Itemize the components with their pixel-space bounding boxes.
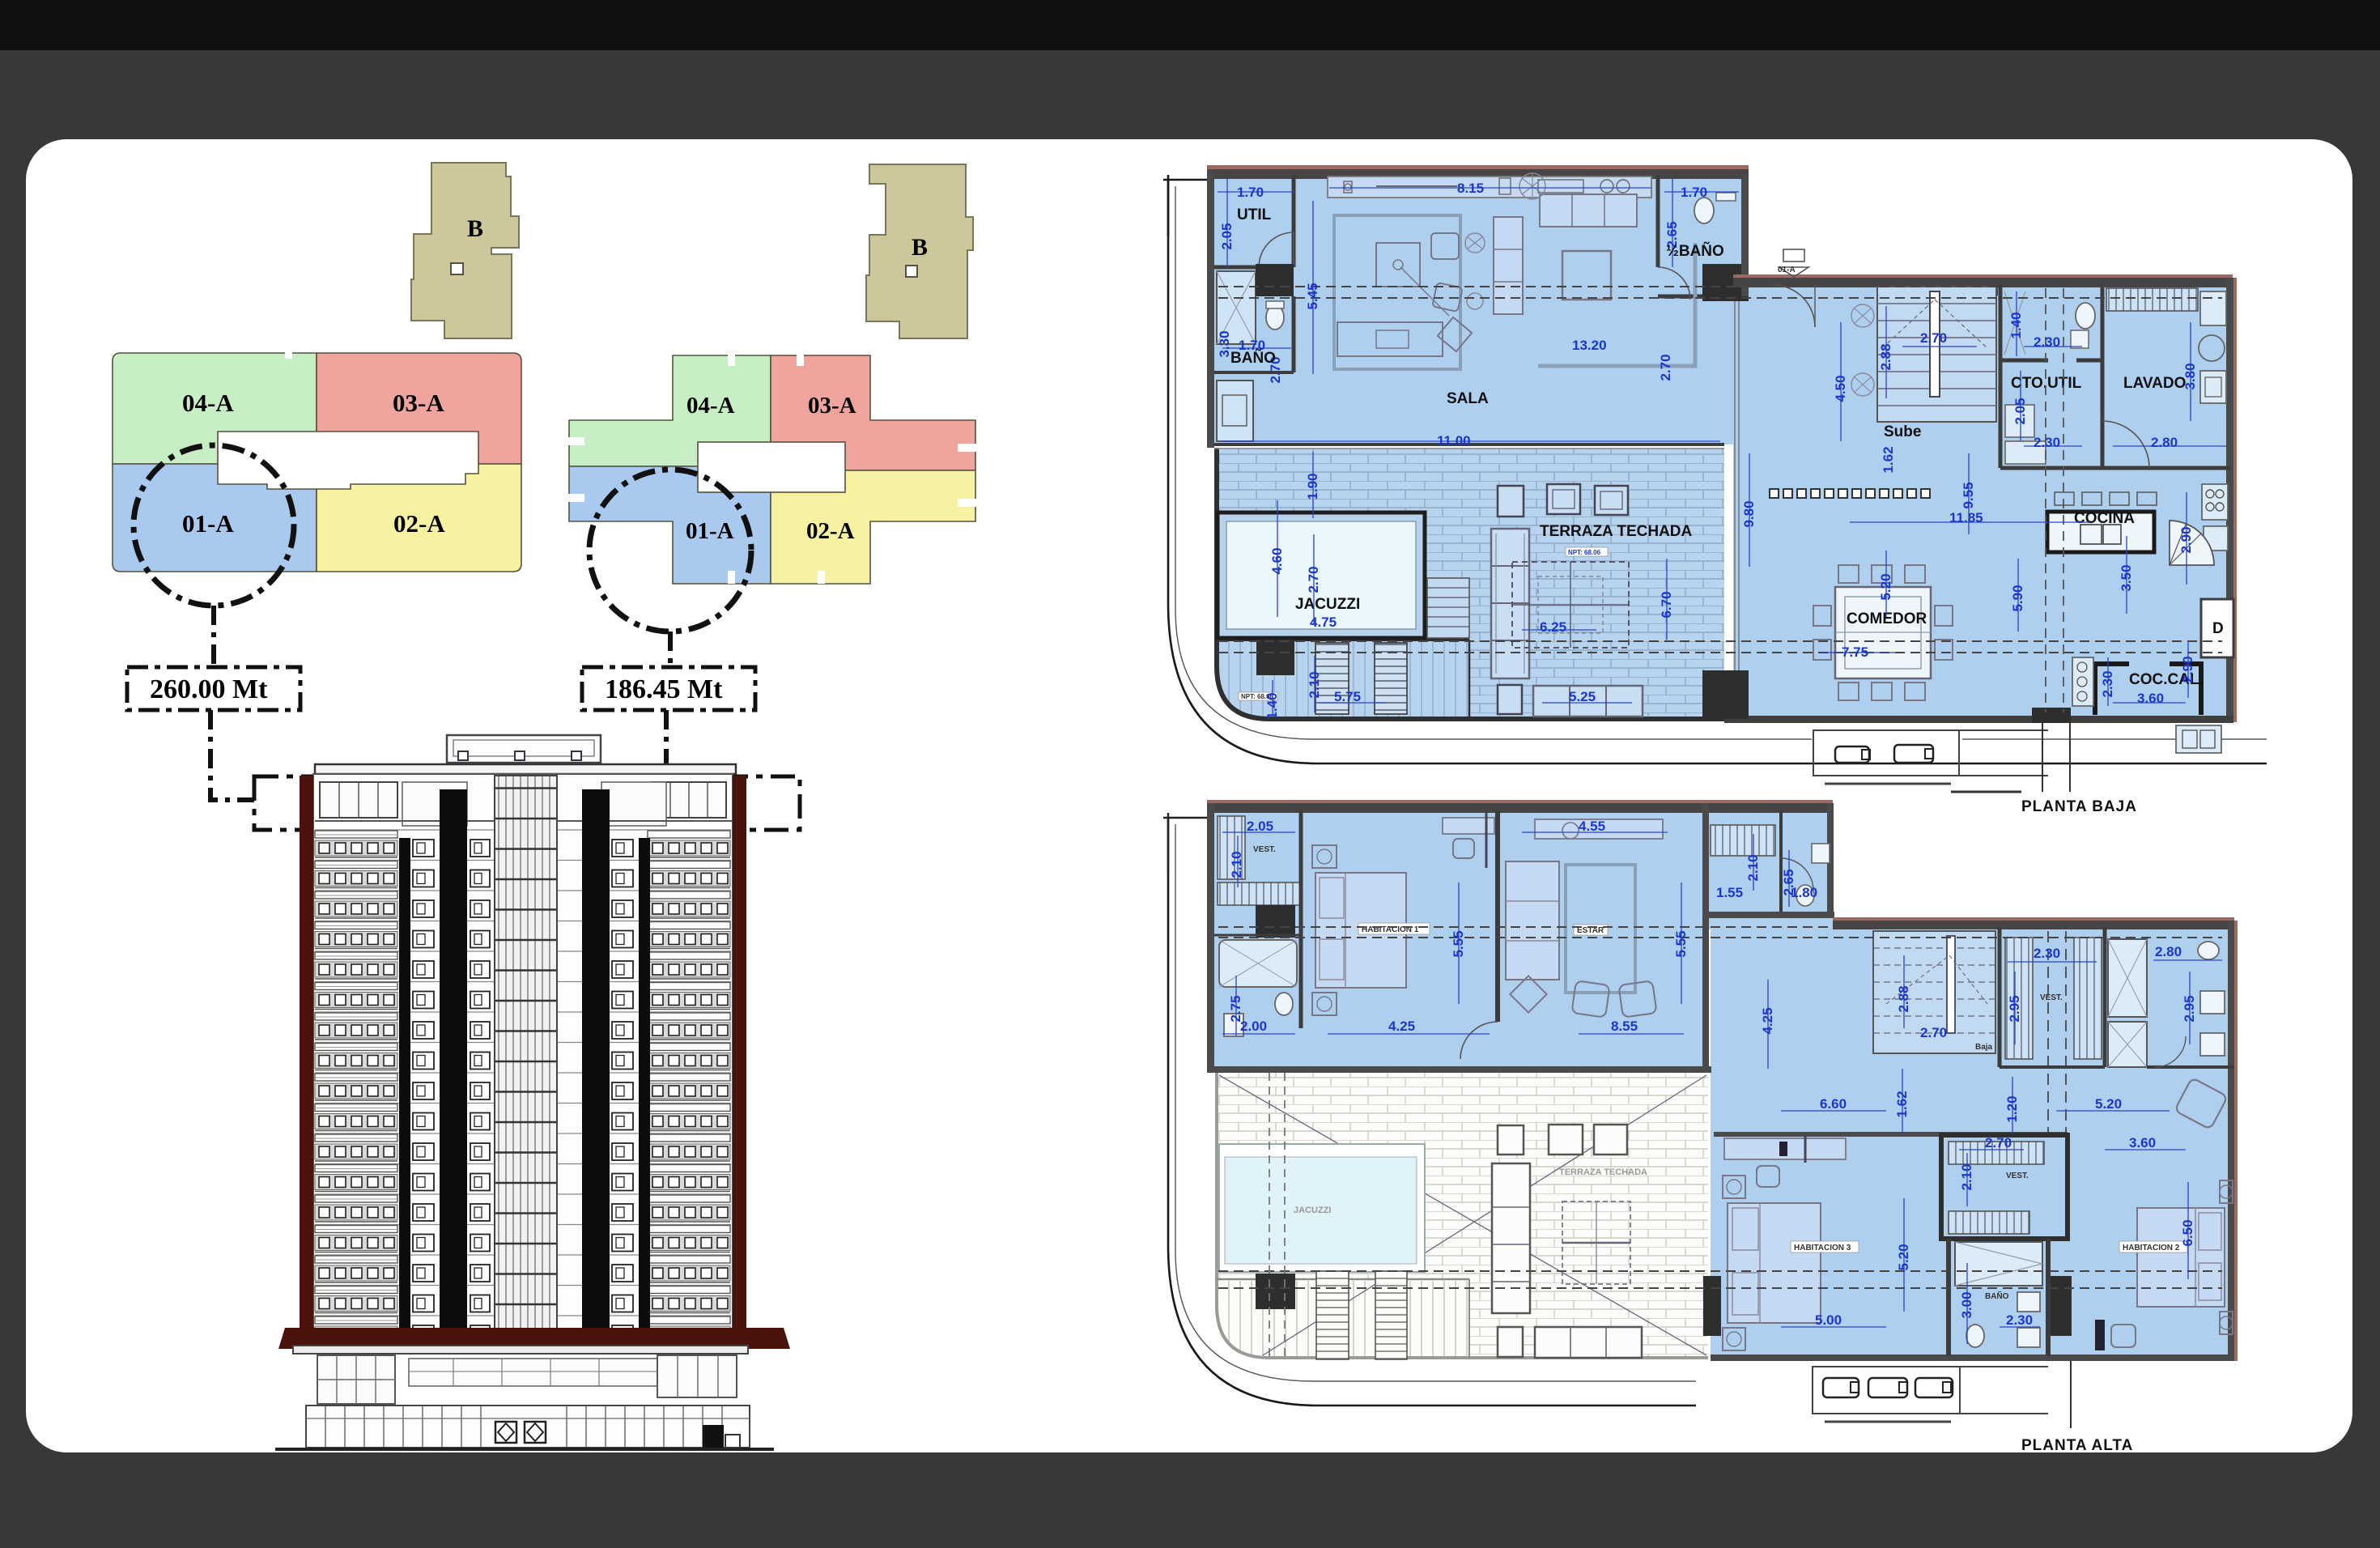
svg-text:D: D (2212, 620, 2224, 637)
svg-text:02-A: 02-A (806, 518, 855, 544)
svg-text:2.30: 2.30 (2006, 1312, 2033, 1328)
svg-text:5.20: 5.20 (1896, 1244, 1911, 1270)
svg-text:JACUZZI: JACUZZI (1294, 1206, 1331, 1215)
svg-text:1.55: 1.55 (1716, 885, 1743, 900)
svg-text:2.05: 2.05 (2012, 398, 2028, 424)
svg-text:NPT: 68.06: NPT: 68.06 (1568, 549, 1601, 556)
svg-text:2.70: 2.70 (1985, 1135, 2012, 1150)
svg-text:2.80: 2.80 (2151, 435, 2178, 450)
svg-text:5.55: 5.55 (1451, 930, 1466, 957)
svg-text:BAÑO: BAÑO (1985, 1291, 2009, 1301)
svg-text:5.45: 5.45 (1305, 283, 1320, 309)
svg-text:B: B (912, 234, 928, 261)
svg-text:5.25: 5.25 (1569, 689, 1596, 704)
svg-text:HABITACION 2: HABITACION 2 (2123, 1244, 2180, 1252)
svg-text:8.15: 8.15 (1457, 181, 1484, 196)
svg-text:2.10: 2.10 (1307, 671, 1322, 698)
svg-text:6.70: 6.70 (1659, 591, 1674, 618)
svg-text:186.45 Mt: 186.45 Mt (605, 674, 723, 704)
svg-text:03-A: 03-A (393, 389, 444, 417)
svg-text:4.55: 4.55 (1579, 819, 1605, 834)
svg-text:VEST.: VEST. (2040, 993, 2063, 1002)
svg-text:2.95: 2.95 (2007, 995, 2022, 1022)
svg-text:2.90: 2.90 (2178, 526, 2194, 553)
svg-text:1.40: 1.40 (1264, 692, 1280, 719)
svg-text:01-A: 01-A (686, 518, 734, 544)
svg-text:5.55: 5.55 (1673, 930, 1689, 957)
svg-text:260.00 Mt: 260.00 Mt (150, 674, 268, 704)
svg-text:2.00: 2.00 (1240, 1019, 1267, 1034)
svg-text:2.10: 2.10 (1745, 854, 1761, 881)
svg-text:SALA: SALA (1447, 390, 1489, 407)
svg-text:2.05: 2.05 (1219, 223, 1235, 249)
svg-text:2.30: 2.30 (2034, 946, 2060, 961)
svg-text:4.25: 4.25 (1760, 1007, 1775, 1034)
svg-text:1.80: 1.80 (1791, 885, 1817, 900)
svg-text:TERRAZA TECHADA: TERRAZA TECHADA (1540, 523, 1693, 540)
svg-text:2.10: 2.10 (1959, 1163, 1974, 1190)
svg-text:1.40: 1.40 (2008, 312, 2024, 338)
svg-text:B: B (467, 215, 483, 242)
svg-text:9.55: 9.55 (1961, 482, 1976, 508)
svg-text:2.88: 2.88 (1896, 985, 1911, 1012)
svg-text:BAÑO: BAÑO (1230, 349, 1276, 367)
svg-text:1.70: 1.70 (1681, 185, 1707, 200)
svg-text:VEST.: VEST. (1253, 845, 1276, 854)
svg-text:2.30: 2.30 (2034, 435, 2060, 450)
svg-text:7.75: 7.75 (1842, 644, 1868, 660)
svg-text:2.88: 2.88 (1878, 343, 1893, 370)
svg-text:TERRAZA TECHADA: TERRAZA TECHADA (1559, 1167, 1647, 1177)
svg-text:9.80: 9.80 (1741, 500, 1757, 527)
svg-text:2.70: 2.70 (1920, 330, 1947, 346)
svg-text:11.00: 11.00 (1437, 433, 1471, 449)
svg-text:3.60: 3.60 (2137, 691, 2164, 706)
svg-text:2.30: 2.30 (2034, 334, 2060, 350)
svg-text:4.25: 4.25 (1388, 1019, 1415, 1034)
svg-text:6.60: 6.60 (1820, 1096, 1847, 1112)
svg-text:1.62: 1.62 (1894, 1091, 1910, 1117)
svg-text:11.85: 11.85 (1949, 510, 1983, 525)
svg-text:3.00: 3.00 (1959, 1291, 1974, 1318)
svg-text:01-A: 01-A (182, 509, 234, 538)
svg-text:4.50: 4.50 (1833, 375, 1848, 402)
svg-text:1.90: 1.90 (1305, 473, 1320, 500)
svg-text:03-A: 03-A (808, 393, 856, 419)
svg-text:4.60: 4.60 (1269, 547, 1285, 574)
svg-text:2.05: 2.05 (1247, 819, 1273, 834)
svg-text:JACUZZI: JACUZZI (1295, 596, 1360, 613)
svg-text:5.90: 5.90 (2010, 585, 2025, 611)
svg-text:2.30: 2.30 (2100, 670, 2115, 697)
svg-text:8.55: 8.55 (1611, 1019, 1638, 1034)
svg-text:VEST.: VEST. (2006, 1172, 2029, 1180)
svg-text:2.70: 2.70 (1306, 566, 1321, 593)
svg-text:04-A: 04-A (182, 389, 234, 417)
svg-text:2.95: 2.95 (2182, 995, 2197, 1022)
svg-text:COMEDOR: COMEDOR (1847, 610, 1927, 627)
svg-text:5.00: 5.00 (1815, 1312, 1842, 1328)
svg-text:1.62: 1.62 (1881, 446, 1896, 473)
svg-text:13.20: 13.20 (1572, 338, 1607, 353)
svg-text:Sube: Sube (1884, 423, 1921, 440)
svg-text:01-A: 01-A (1778, 266, 1796, 274)
svg-text:3.50: 3.50 (2119, 564, 2134, 591)
svg-text:LAVADO: LAVADO (2123, 375, 2186, 392)
svg-text:02-A: 02-A (393, 509, 445, 538)
svg-text:HABITACION 3: HABITACION 3 (1794, 1244, 1851, 1252)
svg-text:04-A: 04-A (686, 393, 735, 419)
svg-text:COCINA: COCINA (2074, 510, 2135, 527)
svg-text:6.25: 6.25 (1540, 619, 1566, 635)
svg-text:2.70: 2.70 (1658, 354, 1673, 381)
svg-text:Baja: Baja (1975, 1043, 1993, 1052)
svg-text:½BAÑO: ½BAÑO (1666, 242, 1724, 260)
svg-text:2.10: 2.10 (1229, 851, 1244, 878)
svg-text:5.75: 5.75 (1334, 689, 1361, 704)
svg-text:5.20: 5.20 (1878, 573, 1893, 600)
svg-text:3.80: 3.80 (2182, 363, 2198, 389)
svg-text:1.20: 1.20 (2004, 1095, 2020, 1122)
svg-text:UTIL: UTIL (1237, 206, 1272, 223)
svg-text:5.20: 5.20 (2095, 1096, 2122, 1112)
svg-text:PLANTA BAJA: PLANTA BAJA (2021, 798, 2137, 815)
svg-text:2.80: 2.80 (2155, 944, 2182, 959)
svg-text:3.60: 3.60 (2129, 1135, 2156, 1150)
svg-text:PLANTA ALTA: PLANTA ALTA (2021, 1437, 2133, 1454)
svg-text:6.50: 6.50 (2180, 1219, 2195, 1246)
svg-text:1.70: 1.70 (1237, 185, 1264, 200)
svg-text:2.70: 2.70 (1920, 1025, 1947, 1040)
svg-text:2.90: 2.90 (2180, 656, 2195, 683)
